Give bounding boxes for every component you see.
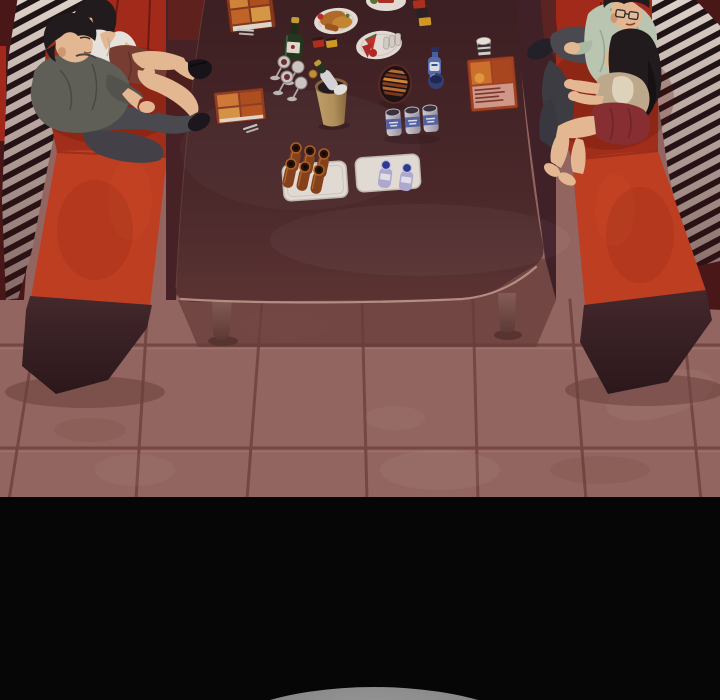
webtoon-panel — [0, 0, 720, 700]
scene-canvas — [0, 0, 720, 700]
black-gutter — [0, 497, 720, 700]
scene-tint — [0, 0, 720, 498]
